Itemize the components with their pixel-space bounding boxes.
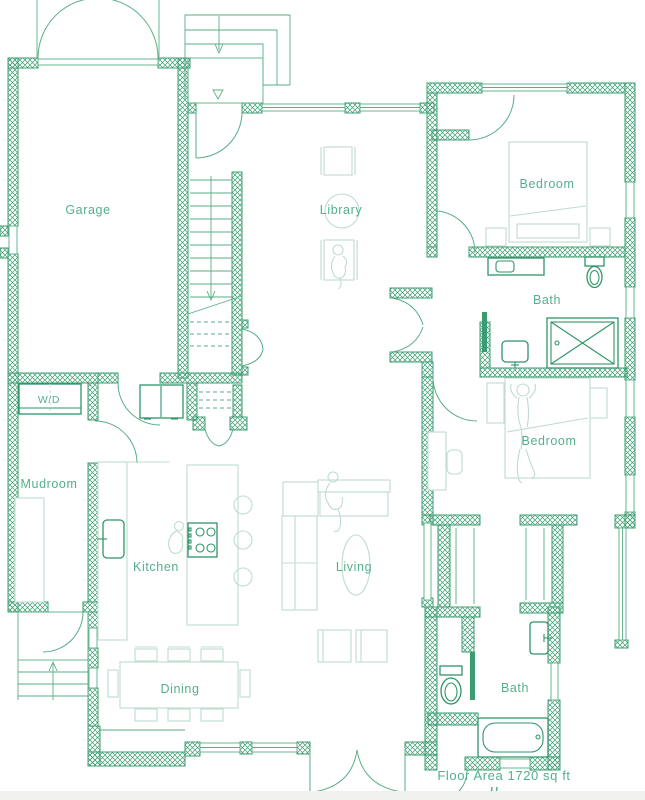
bedroom-1-closet-door (469, 95, 514, 140)
mudroom-fixtures (15, 384, 81, 602)
toilet (440, 666, 462, 704)
nightstand (487, 383, 504, 423)
room-label-garage: Garage (65, 203, 110, 217)
bath-2-fixtures (440, 622, 552, 757)
dining-chair (135, 709, 157, 721)
nightstand (590, 228, 610, 246)
shower (547, 318, 618, 368)
room-label-wd: W/D (38, 394, 60, 406)
room-label-bath-1: Bath (533, 293, 561, 307)
room-label-bedroom-2: Bedroom (522, 434, 577, 448)
room-label-kitchen: Kitchen (133, 560, 179, 574)
room-label-bedroom-1: Bedroom (520, 177, 575, 191)
dining-chair (168, 649, 190, 661)
bedroom-1-furniture (486, 142, 610, 246)
refrigerator (140, 385, 183, 419)
stove (188, 523, 217, 557)
pantry-shelves (199, 392, 231, 408)
library-furniture (321, 147, 359, 289)
sofa-seat (320, 492, 388, 516)
closet-slider-doors (456, 528, 544, 604)
dining-chair (201, 649, 223, 661)
bedroom-2-door (433, 377, 477, 421)
bath-1-pocket-door (482, 312, 487, 352)
floor-plan-canvas: Garage Library Bedroom Bath Bedroom W/D … (0, 0, 645, 800)
room-label-living: Living (336, 560, 372, 574)
sofa-back (318, 480, 390, 492)
library-chair (324, 240, 354, 280)
floor-area-label: Floor Area 1720 sq ft (437, 768, 570, 783)
patio-french-doors (310, 748, 405, 792)
room-label-library: Library (320, 203, 363, 217)
entry-porch-steps (185, 15, 290, 103)
toilet (585, 257, 604, 288)
mudroom-door (95, 421, 137, 463)
library-chair (324, 147, 352, 175)
dining-chair (240, 670, 250, 697)
hall-double-doors (392, 298, 423, 352)
dining-chair (168, 709, 190, 721)
vanity-sink (488, 258, 544, 275)
kitchen-fixtures (97, 385, 252, 640)
desk (428, 432, 446, 490)
viewport-footer-strip (0, 791, 645, 800)
room-label-mudroom: Mudroom (21, 477, 78, 491)
garage-door (37, 0, 159, 65)
entry-marker-icon (213, 90, 223, 99)
bed (509, 142, 587, 242)
pantry-double-doors (205, 429, 233, 446)
small-sink (502, 341, 528, 368)
room-label-bath-2: Bath (501, 681, 529, 695)
mudroom-exterior-door (43, 612, 83, 652)
understair-closet-doors (242, 329, 263, 366)
bath-2-pocket-door (470, 652, 475, 700)
room-label-dining: Dining (160, 682, 199, 696)
desk-chair (447, 450, 462, 474)
bath-1-fixtures (488, 257, 618, 368)
sofa-corner (283, 482, 318, 516)
dining-chair (201, 709, 223, 721)
dining-chair (108, 670, 118, 697)
nightstand (486, 228, 506, 246)
bedroom-2-furniture (428, 378, 607, 490)
entry-door (196, 112, 242, 158)
mudroom-porch-steps (18, 612, 88, 700)
nightstand (590, 388, 607, 418)
dining-chair (135, 649, 157, 661)
mudroom-bench (15, 498, 44, 602)
bathtub (478, 718, 548, 757)
person-at-island (169, 522, 184, 554)
